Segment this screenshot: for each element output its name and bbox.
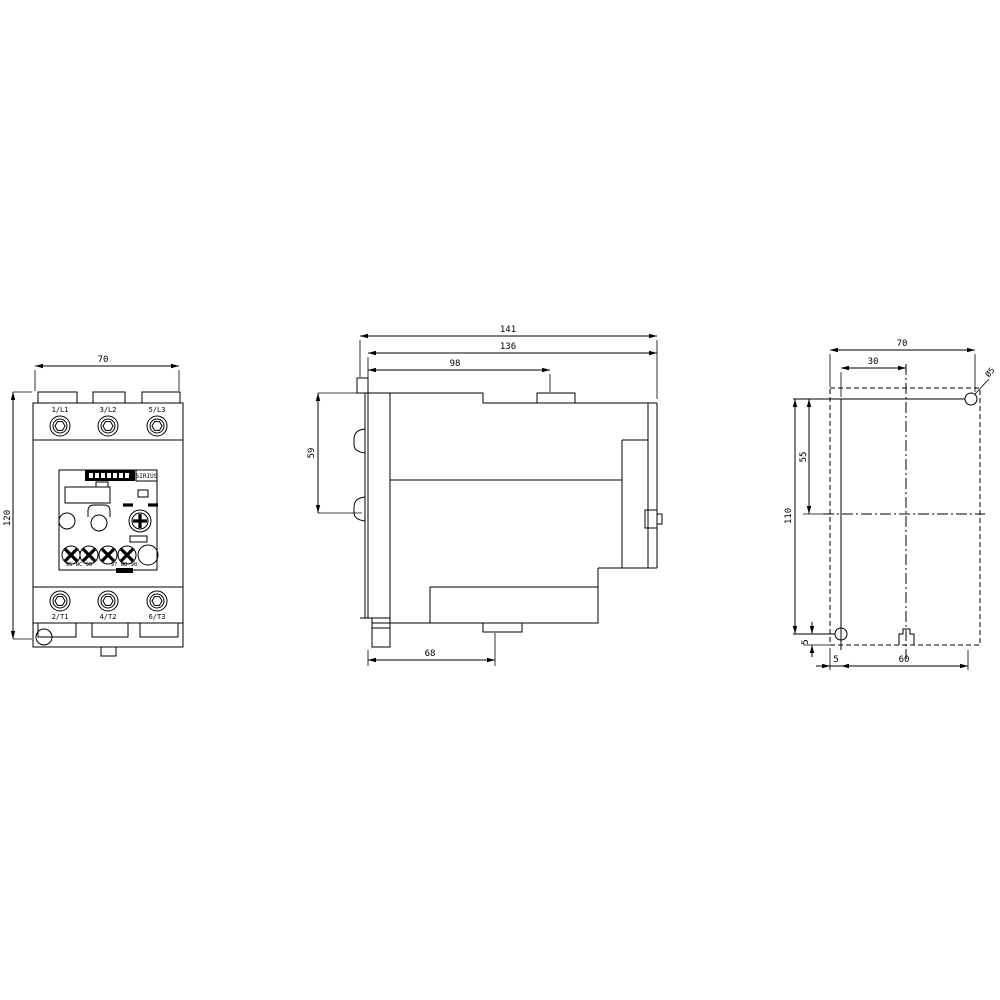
din-clip-upper [354,429,365,453]
dim-hole-edge-h: 5 [833,655,838,665]
reset-knob [91,515,107,531]
dim-front-height: 120 [3,510,13,526]
side-view: 141 136 98 59 68 [307,325,662,666]
side-dimensions: 141 136 98 59 68 [307,325,657,666]
rear-dimensions: 70 30 110 55 5 5 60 [784,339,975,670]
mounting-hole-top [965,393,977,405]
din-clip-lower [354,497,365,521]
front-view: 70 120 1/L1 3/L2 [3,355,183,656]
dim-slot-offset: 30 [868,357,879,367]
dim-depth-body: 136 [500,342,516,352]
test-button [59,513,75,529]
dim-centerline-offset: 55 [799,452,809,463]
class-marking-box [116,568,133,573]
dim-hole-pitch-h: 60 [899,655,910,665]
dial-cross-icon [133,514,147,528]
front-bottom-terminals: 2/T1 4/T2 6/T3 [50,591,167,621]
hole-diameter-callout: Ø5 [983,365,997,379]
terminal-screw-icon [98,416,118,436]
dim-front-width: 70 [98,355,109,365]
terminal-screw-icon [147,416,167,436]
dim-height-upper: 59 [307,448,317,459]
terminal-label-5L3: 5/L3 [149,406,166,414]
mounting-foot [372,618,390,647]
terminal-label-6T3: 6/T3 [149,613,166,621]
dim-depth-lower: 68 [425,649,436,659]
terminal-screw-icon [147,591,167,611]
dim-tab-position: 98 [450,359,461,369]
dim-depth-overall: 141 [500,325,516,335]
side-profile-outline [354,378,662,647]
stop-button [138,545,158,565]
terminal-screw-icon [50,591,70,611]
terminal-label-1L1: 1/L1 [52,406,69,414]
terminal-label-3L2: 3/L2 [100,406,117,414]
front-control-panel: SIRIUS 95 NC 96 97 NO 98 [59,470,158,573]
status-indicator [138,490,148,497]
aux-terminal-label-right: 97 NO 98 [111,562,138,568]
lower-block [430,587,598,623]
rear-view: Ø5 70 30 110 55 5 [784,339,997,670]
device-outline-dashed [830,388,980,645]
top-tab [537,393,575,403]
terminal-screw-icon [50,416,70,436]
technical-drawing: 70 120 1/L1 3/L2 [0,0,1000,1000]
side-connector [645,510,657,528]
front-top-terminals: 1/L1 3/L2 5/L3 [50,406,167,436]
dim-hole-edge-v: 5 [801,639,811,644]
din-rail-tab [357,378,368,393]
front-dimensions: 70 120 [3,355,179,639]
brand-label: SIRIUS [136,473,158,480]
hole-leader-line [975,379,989,394]
display-window [65,487,110,503]
terminal-label-2T1: 2/T1 [52,613,69,621]
rear-outline: Ø5 [793,364,997,658]
dim-hole-pitch-v: 110 [784,508,794,524]
dim-rear-width: 70 [897,339,908,349]
terminal-label-4T2: 4/T2 [100,613,117,621]
terminal-screw-icon [98,591,118,611]
aux-terminal-label-left: 95 NC 96 [66,562,93,568]
